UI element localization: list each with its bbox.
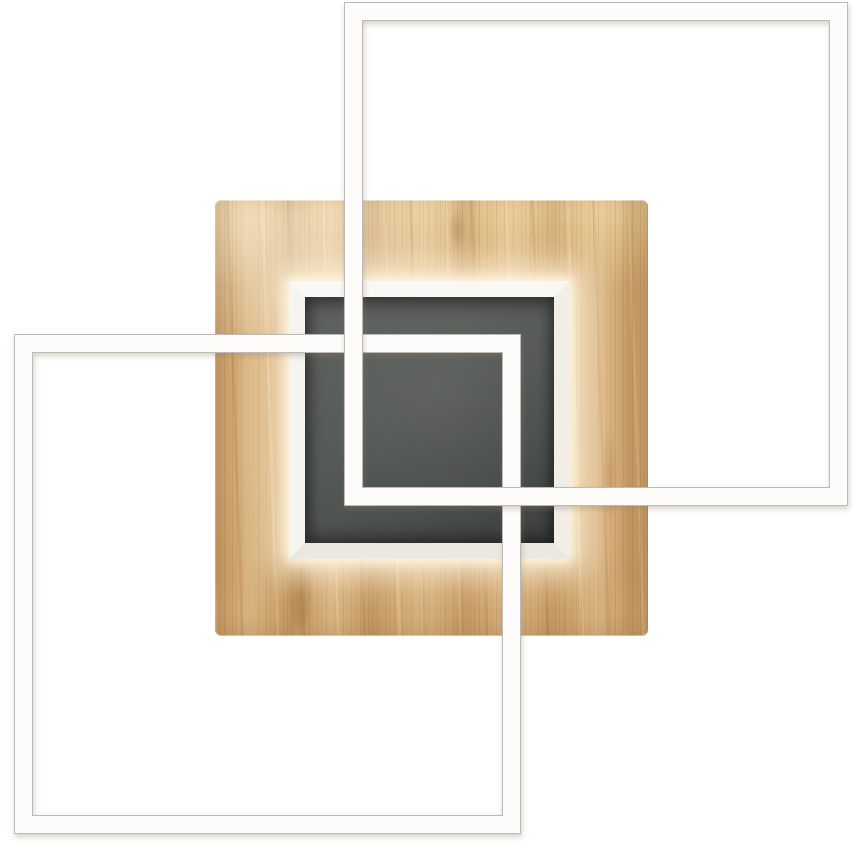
led-frame-top-right <box>345 3 847 505</box>
product-photo <box>0 0 865 866</box>
